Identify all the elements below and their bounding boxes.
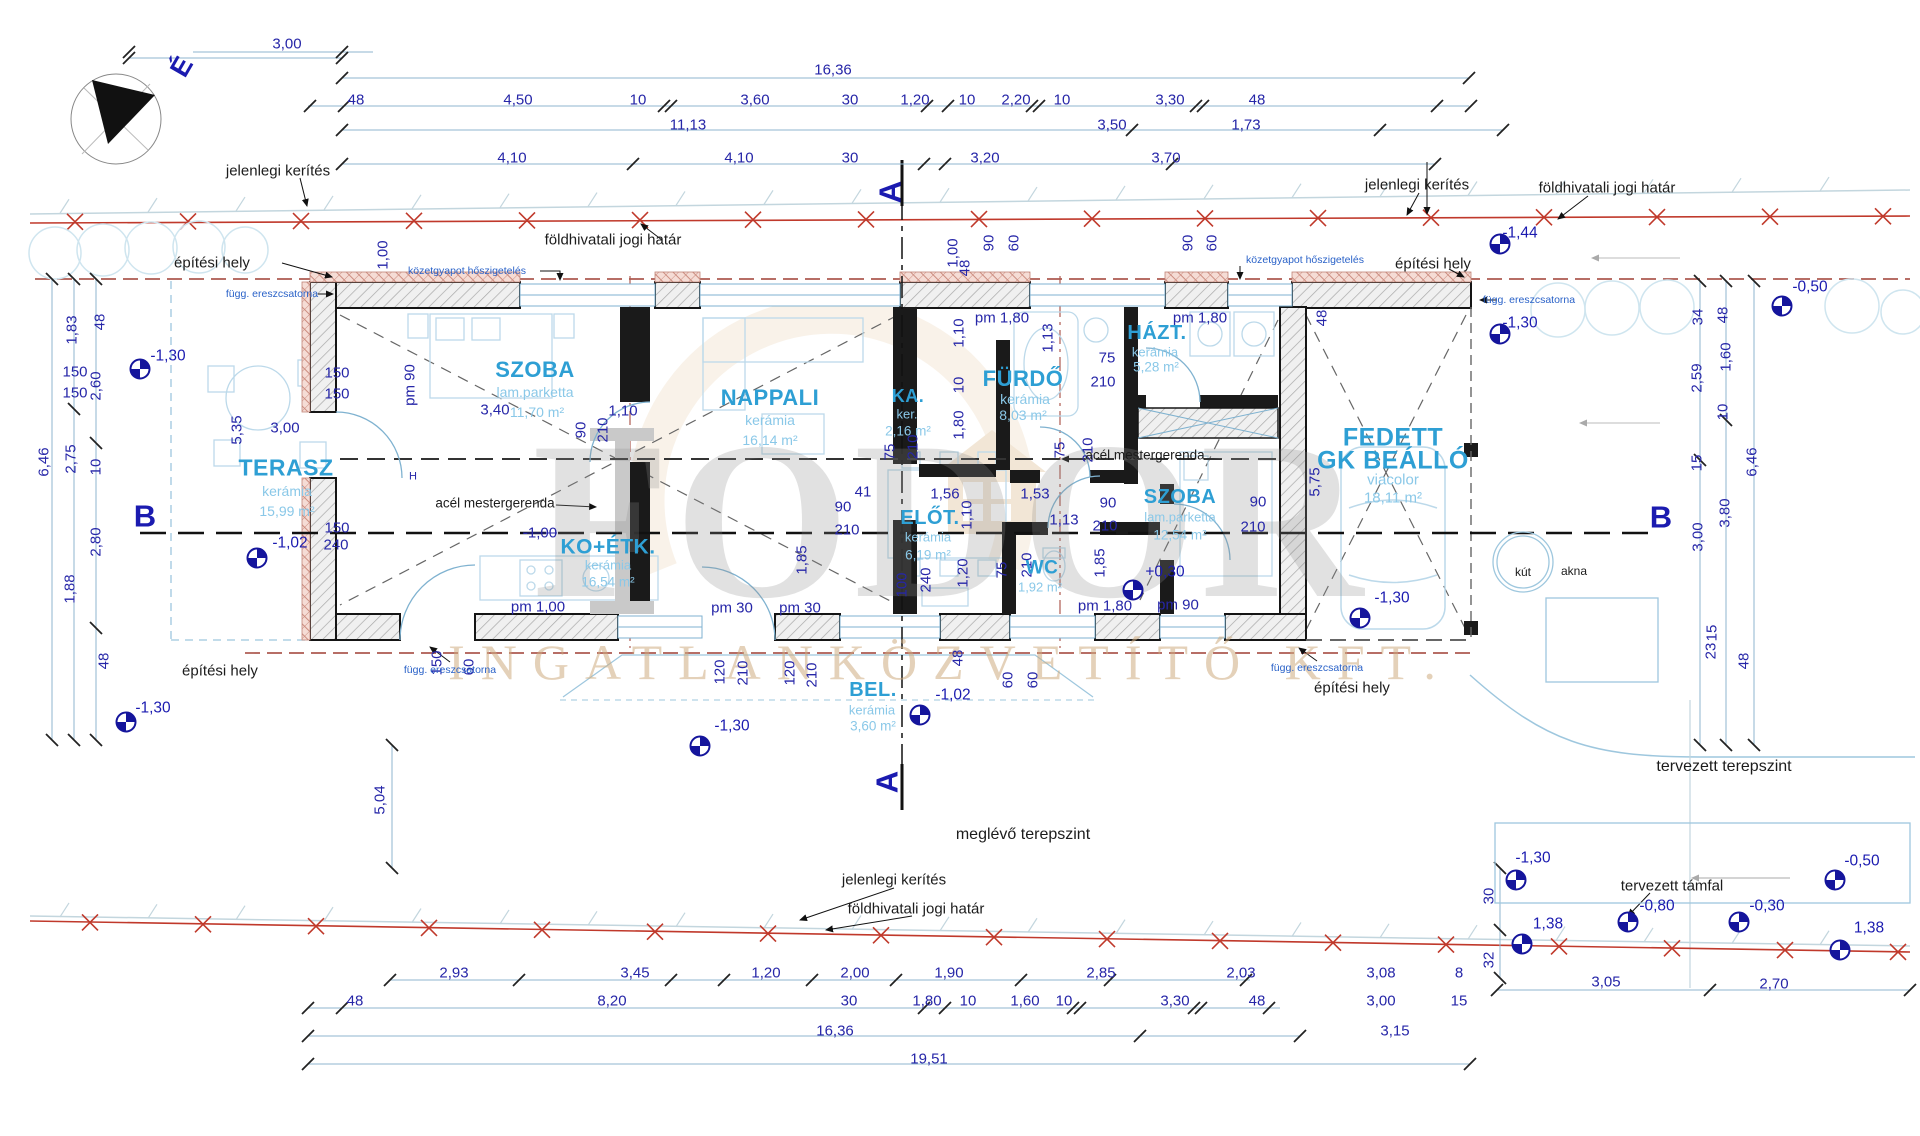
- dimension-label: 48: [93, 314, 108, 331]
- annotation-label: jelenlegi kerítés: [1365, 178, 1469, 193]
- dimension-label: 41: [855, 485, 872, 500]
- annotation-label: építési hely: [182, 664, 258, 679]
- dimension-label: 2,03: [1226, 966, 1255, 981]
- dimension-label: 3,00: [1691, 522, 1706, 551]
- level-marker-icon: [1772, 296, 1793, 317]
- dimension-label: 30: [842, 151, 859, 166]
- dimension-label: 1,56: [930, 487, 959, 502]
- dimension-label: 10: [1716, 404, 1731, 421]
- dimension-label: 75: [995, 562, 1010, 579]
- dimension-label: 48: [347, 994, 364, 1009]
- dimension-label: 3,00: [1366, 994, 1395, 1009]
- dimension-label: 1,53: [1020, 487, 1049, 502]
- dimension-label: 2,70: [1759, 977, 1788, 992]
- level-value: 1,38: [1854, 920, 1884, 936]
- dimension-label: 150: [62, 386, 87, 401]
- dimension-label: 90: [835, 500, 852, 515]
- room-name: SZOBA: [495, 359, 575, 381]
- dimension-label: 1,20: [751, 966, 780, 981]
- level-value: -0,30: [1749, 898, 1784, 914]
- dimension-label: 15: [1705, 625, 1720, 642]
- room-subtitle: 11,70 m²: [510, 405, 564, 419]
- dimension-label: 8,20: [597, 994, 626, 1009]
- level-marker-icon: [1350, 608, 1371, 629]
- dimension-label: 210: [1090, 375, 1115, 390]
- dimension-label: 4,10: [497, 151, 526, 166]
- construction-note: közetgyapot hőszigetelés: [408, 266, 526, 277]
- level-marker-icon: [910, 705, 931, 726]
- dimension-label: 3,15: [1380, 1024, 1409, 1039]
- annotation-layer: 3,0016,36484,50103,60301,20102,20103,304…: [0, 0, 1920, 1136]
- level-marker-icon: [690, 736, 711, 757]
- dimension-label: 10: [960, 994, 977, 1009]
- dimension-label: 90: [1250, 495, 1267, 510]
- level-value: +0,30: [1145, 564, 1184, 580]
- room-name: ELŐT.: [900, 508, 959, 528]
- dimension-label: 3,50: [1097, 118, 1126, 133]
- room-subtitle: 8,03 m²: [999, 408, 1046, 422]
- dimension-label: 150: [62, 365, 87, 380]
- annotation-label: földhivatali jogi határ: [545, 233, 682, 248]
- dimension-label: 6,46: [37, 447, 52, 476]
- dimension-label: 1,80: [952, 410, 967, 439]
- dimension-label: 6,46: [1745, 447, 1760, 476]
- dimension-label: 5,35: [230, 415, 245, 444]
- annotation-label: kút: [1515, 566, 1531, 578]
- dimension-label: 1,85: [795, 545, 810, 574]
- room-name: GK BEÁLLÓ: [1317, 449, 1469, 474]
- level-marker-icon: [1123, 580, 1144, 601]
- dimension-label: 2,60: [89, 371, 104, 400]
- room-subtitle: lam.parketta: [1144, 511, 1216, 524]
- room-name: BEL.: [849, 680, 897, 700]
- dimension-label: 210: [834, 523, 859, 538]
- level-marker-icon: [1825, 870, 1846, 891]
- dimension-label: pm 1,80: [1078, 599, 1132, 614]
- dimension-label: 1,13: [1041, 323, 1056, 352]
- dimension-label: 2,93: [439, 966, 468, 981]
- annotation-label: építési hely: [1395, 257, 1471, 272]
- annotation-label: földhivatali jogi határ: [1539, 181, 1676, 196]
- annotation-label: jelenlegi kerítés: [226, 164, 330, 179]
- dimension-label: 1,85: [1093, 548, 1108, 577]
- dimension-label: H: [409, 472, 417, 483]
- annotation-label: akna: [1561, 565, 1587, 577]
- room-subtitle: 16,54 m²: [581, 575, 634, 589]
- dimension-label: 3,05: [1591, 975, 1620, 990]
- level-value: -1,30: [150, 348, 185, 364]
- dimension-label: 210: [1092, 519, 1117, 534]
- dimension-label: pm 90: [1157, 598, 1199, 613]
- dimension-label: 10: [1054, 93, 1071, 108]
- construction-note: közetgyapot hőszigetelés: [1246, 255, 1364, 266]
- annotation-label: építési hely: [174, 256, 250, 271]
- annotation-label: építési hely: [1314, 681, 1390, 696]
- dimension-label: 48: [1249, 994, 1266, 1009]
- level-value: -1,02: [272, 535, 307, 551]
- dimension-label: 60: [1007, 235, 1022, 252]
- room-subtitle: kerámia: [1132, 346, 1178, 359]
- dimension-label: 60: [1001, 672, 1016, 689]
- annotation-label: tervezett támfal: [1621, 879, 1724, 894]
- dimension-label: 4,50: [503, 93, 532, 108]
- dimension-label: 2,85: [1086, 966, 1115, 981]
- level-value: -0,80: [1639, 898, 1674, 914]
- dimension-label: 90: [1100, 496, 1117, 511]
- room-subtitle: kerámia: [745, 413, 795, 427]
- dimension-label: 60: [1026, 672, 1041, 689]
- dimension-label: 210: [596, 417, 611, 442]
- terrain-label: meglévő terepszint: [956, 827, 1090, 843]
- dimension-label: pm 1,80: [975, 311, 1029, 326]
- terrain-label: tervezett terepszint: [1656, 759, 1791, 775]
- dimension-label: 2,20: [1001, 93, 1030, 108]
- dimension-label: 10: [959, 93, 976, 108]
- dimension-label: 120: [713, 659, 728, 684]
- room-subtitle: 2,16 m²: [885, 424, 931, 438]
- dimension-label: 240: [919, 567, 934, 592]
- dimension-label: 1,10: [608, 404, 637, 419]
- room-name: WC: [1026, 559, 1059, 578]
- room-subtitle: kerámia: [849, 704, 895, 717]
- dimension-label: 90: [982, 235, 997, 252]
- dimension-label: 3,20: [970, 151, 999, 166]
- annotation-label: földhivatali jogi határ: [848, 902, 985, 917]
- level-value: -1,02: [935, 687, 970, 703]
- dimension-label: 32: [1482, 952, 1497, 969]
- dimension-label: 48: [958, 260, 973, 277]
- dimension-label: 16,36: [816, 1024, 854, 1039]
- dimension-label: 34: [1691, 309, 1706, 326]
- section-letter: B: [134, 501, 156, 532]
- dimension-label: 8: [1455, 966, 1463, 981]
- dimension-label: 1,10: [960, 500, 975, 529]
- level-marker-icon: [1506, 870, 1527, 891]
- dimension-label: 10: [1056, 994, 1073, 1009]
- dimension-label: 30: [842, 93, 859, 108]
- room-subtitle: 18,11 m²: [1364, 491, 1422, 506]
- dimension-label: 150: [324, 366, 349, 381]
- construction-note: függ. ereszcsatorna: [226, 289, 318, 300]
- dimension-label: 48: [348, 93, 365, 108]
- room-subtitle: 12,54 m²: [1153, 528, 1206, 542]
- dimension-label: 3,30: [1155, 93, 1184, 108]
- room-name: NAPPALI: [721, 387, 819, 409]
- level-marker-icon: [1830, 940, 1851, 961]
- dimension-label: 75: [883, 444, 898, 461]
- level-marker-icon: [1729, 912, 1750, 933]
- room-subtitle: 1,92 m²: [1018, 581, 1062, 594]
- dimension-label: 1,60: [1010, 994, 1039, 1009]
- room-name: SZOBA: [1144, 487, 1217, 507]
- dimension-label: 240: [323, 538, 348, 553]
- construction-note: függ. ereszcsatorna: [1483, 295, 1575, 306]
- dimension-label: pm 1,00: [511, 600, 565, 615]
- level-marker-icon: [1490, 324, 1511, 345]
- dimension-label: 48: [1249, 93, 1266, 108]
- dimension-label: 1,10: [952, 318, 967, 347]
- room-subtitle: 6,19 m²: [905, 548, 951, 562]
- level-marker-icon: [1490, 234, 1511, 255]
- room-subtitle: ker.: [897, 408, 918, 421]
- dimension-label: 75: [1053, 442, 1068, 459]
- room-name: KA.: [892, 387, 925, 405]
- dimension-label: 48: [1737, 653, 1752, 670]
- level-marker-icon: [130, 359, 151, 380]
- dimension-label: 1,73: [1231, 118, 1260, 133]
- dimension-label: 10: [952, 377, 967, 394]
- level-value: -1,30: [135, 700, 170, 716]
- dimension-label: 3,30: [1160, 994, 1189, 1009]
- dimension-label: 210: [1240, 520, 1265, 535]
- dimension-label: 2,80: [89, 527, 104, 556]
- dimension-label: 1,00: [376, 240, 391, 269]
- dimension-label: 3,00: [272, 37, 301, 52]
- dimension-label: 1,90: [934, 966, 963, 981]
- dimension-label: 75: [1099, 351, 1116, 366]
- room-name: FÜRDŐ: [983, 368, 1064, 390]
- dimension-label: 1,13: [1049, 513, 1078, 528]
- dimension-label: 2,00: [840, 966, 869, 981]
- dimension-label: 5,04: [373, 785, 388, 814]
- level-value: -1,30: [1515, 850, 1550, 866]
- dimension-label: 120: [783, 660, 798, 685]
- site-plan-page: FODOR INGATLANKÖZVETÍTŐ KFT. 3,0016,3648…: [0, 0, 1920, 1136]
- dimension-label: 1,83: [65, 315, 80, 344]
- dimension-label: 150: [324, 387, 349, 402]
- dimension-label: 1,20: [956, 558, 971, 587]
- dimension-label: 3,80: [1718, 498, 1733, 527]
- level-value: -0,50: [1844, 853, 1879, 869]
- dimension-label: 1,80: [912, 994, 941, 1009]
- dimension-label: 10: [89, 459, 104, 476]
- dimension-label: pm 30: [779, 601, 821, 616]
- dimension-label: 3,60: [740, 93, 769, 108]
- dimension-label: 3,00: [270, 421, 299, 436]
- room-name: TERASZ: [239, 457, 334, 480]
- level-marker-icon: [1512, 934, 1533, 955]
- level-marker-icon: [1618, 912, 1639, 933]
- section-letter: B: [1650, 502, 1672, 533]
- dimension-label: 11,13: [670, 118, 706, 133]
- construction-note: függ. ereszcsatorna: [404, 665, 496, 676]
- room-subtitle: lam.parketta: [496, 385, 573, 399]
- dimension-label: 3,45: [620, 966, 649, 981]
- dimension-label: 23: [1704, 643, 1719, 660]
- dimension-label: 90: [1181, 235, 1196, 252]
- dimension-label: 30: [1482, 888, 1497, 905]
- annotation-label: jelenlegi kerítés: [842, 873, 946, 888]
- dimension-label: 3,70: [1151, 151, 1180, 166]
- room-subtitle: kerámia: [585, 559, 631, 572]
- dimension-label: 3,40: [480, 403, 509, 418]
- room-subtitle: kerámia: [262, 484, 312, 498]
- dimension-label: 10: [630, 93, 647, 108]
- dimension-label: 19,51: [910, 1052, 948, 1067]
- room-name: KO+ÉTK.: [560, 537, 655, 558]
- dimension-label: 48: [1315, 310, 1330, 327]
- dimension-label: 60: [1205, 235, 1220, 252]
- dimension-label: 15: [1690, 455, 1705, 472]
- dimension-label: 16,36: [814, 63, 852, 78]
- room-name: HÁZT.: [1127, 323, 1186, 343]
- dimension-label: 4,10: [724, 151, 753, 166]
- section-letter: A: [872, 771, 903, 793]
- section-letter: É: [166, 52, 198, 81]
- room-subtitle: 16,14 m²: [742, 433, 797, 447]
- room-subtitle: 3,60 m²: [850, 719, 896, 733]
- dimension-label: 3,08: [1366, 966, 1395, 981]
- section-letter: A: [875, 181, 906, 203]
- annotation-label: acél mestergerenda: [435, 496, 554, 510]
- level-value: -0,50: [1792, 279, 1827, 295]
- dimension-label: 30: [841, 994, 858, 1009]
- dimension-label: 48: [951, 650, 966, 667]
- dimension-label: 2,59: [1690, 363, 1705, 392]
- dimension-label: 1,88: [63, 574, 78, 603]
- level-marker-icon: [116, 712, 137, 733]
- dimension-label: 90: [574, 422, 589, 439]
- dimension-label: 1,20: [900, 93, 929, 108]
- level-marker-icon: [247, 548, 268, 569]
- dimension-label: 15: [1451, 994, 1468, 1009]
- dimension-label: 210: [736, 660, 751, 685]
- room-subtitle: viacolor: [1367, 473, 1419, 488]
- dimension-label: 100: [895, 572, 910, 597]
- level-value: 1,38: [1533, 916, 1563, 932]
- dimension-label: 210: [805, 662, 820, 687]
- dimension-label: pm 30: [711, 601, 753, 616]
- level-value: -1,30: [1374, 590, 1409, 606]
- dimension-label: 150: [324, 521, 349, 536]
- room-subtitle: kerámia: [905, 531, 951, 544]
- dimension-label: 48: [97, 653, 112, 670]
- room-subtitle: 5,28 m²: [1133, 360, 1179, 374]
- room-subtitle: 15,99 m²: [259, 504, 314, 518]
- dimension-label: 48: [1716, 307, 1731, 324]
- annotation-label: acél mestergerenda: [1085, 448, 1204, 462]
- dimension-label: 1,60: [1719, 342, 1734, 371]
- level-value: -1,30: [714, 718, 749, 734]
- dimension-label: pm 90: [403, 364, 418, 406]
- dimension-label: 2,75: [64, 444, 79, 473]
- dimension-label: -1,00: [523, 526, 557, 541]
- room-subtitle: kerámia: [1000, 392, 1050, 406]
- construction-note: függ. ereszcsatorna: [1271, 663, 1363, 674]
